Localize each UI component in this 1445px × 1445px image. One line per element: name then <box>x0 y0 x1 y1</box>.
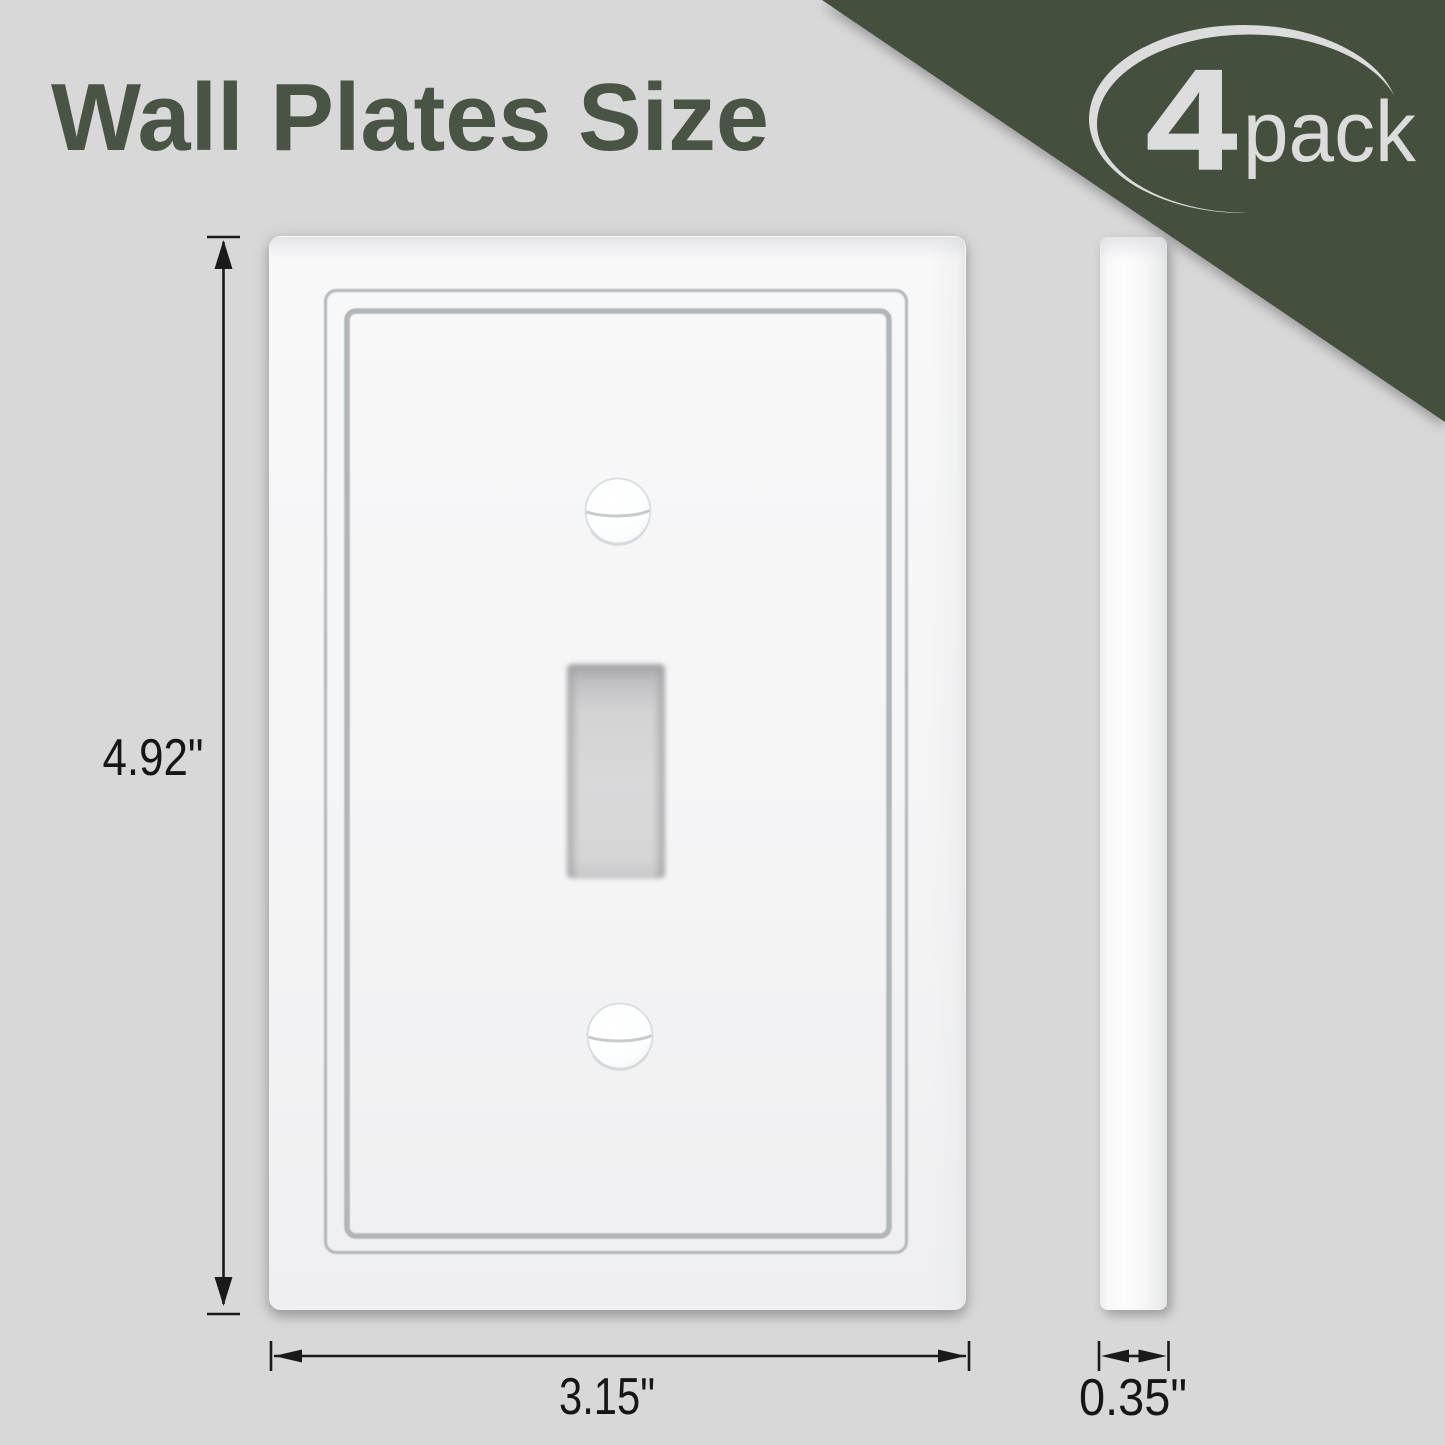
svg-text:Wall Plates Size: Wall Plates Size <box>51 64 769 171</box>
svg-text:3.15": 3.15" <box>559 1368 655 1426</box>
svg-text:0.35": 0.35" <box>1079 1369 1187 1427</box>
svg-text:pack: pack <box>1243 84 1417 180</box>
svg-text:4: 4 <box>1146 41 1237 200</box>
svg-text:4.92": 4.92" <box>103 729 204 787</box>
